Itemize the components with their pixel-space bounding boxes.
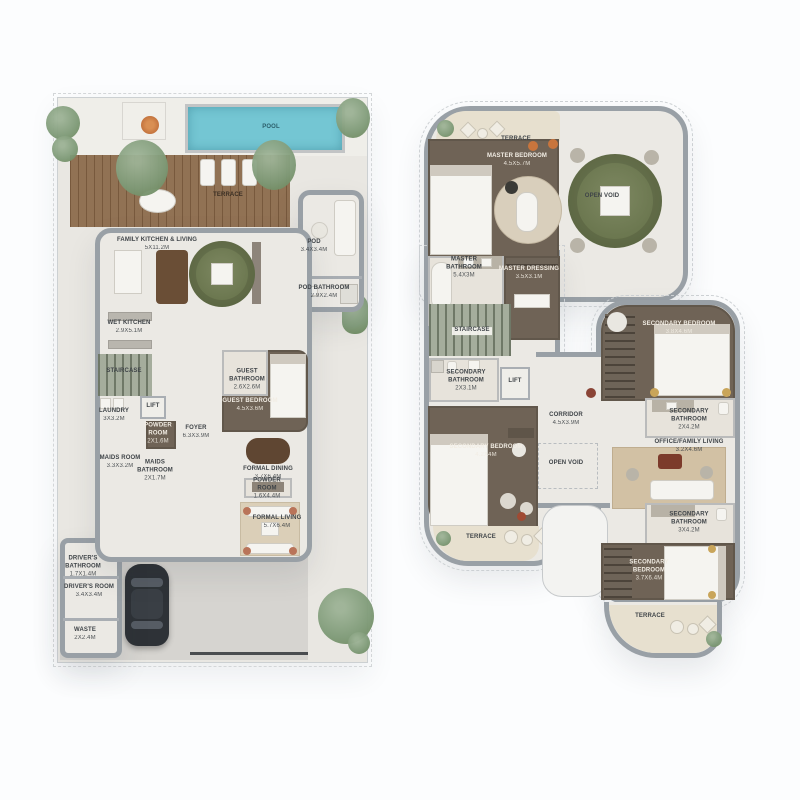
floor-plans-stage: POOLTERRACEFAMILY KITCHEN & LIVING5x11.2… [0,0,800,800]
room-label: MASTER BEDROOM4.5x5.7m [470,153,565,169]
seat [570,238,585,253]
side-table [700,466,713,479]
room-label: STAIRCASE [437,327,507,335]
room-label: FOYER6.3x3.9m [168,425,224,441]
bedside-lamp [708,545,716,553]
room-label: OFFICE/FAMILY LIVING3.2x4.6m [639,439,739,455]
tree [336,98,370,138]
room-label: TERRACE [451,534,511,542]
bed-headboard [718,546,726,600]
armchair [243,507,251,515]
room-label: DRIVER'S ROOM3.4x3.4m [49,584,129,600]
coffee-table [211,263,233,285]
room-label: LIFT [133,403,173,411]
void-shape [542,505,608,597]
wall [63,618,119,621]
car-rear-window [131,621,163,629]
room-label: SECONDARY BATHROOM2x3.1m [437,369,495,392]
side-chair [505,181,518,194]
room-label: POD BATHROOM2.9x2.4m [284,285,364,301]
dining-table [156,250,188,304]
plant [436,531,451,546]
void-table [600,186,630,216]
gate-line [190,652,308,655]
planter-pot [548,139,558,149]
room-label: GUEST BEDROOM4.5x3.6m [203,398,298,414]
seat [642,238,657,253]
fire-feature [141,116,159,134]
room-label: OPEN VOID [531,460,601,468]
room-label: CORRIDOR4.5x3.9m [536,412,596,428]
room-label: GUEST BATHROOM2.6x2.6m [225,368,269,391]
ottoman [658,454,682,469]
wardrobe [506,258,558,266]
room-label: DRIVER'S BATHROOM1.7x1.4m [58,555,108,578]
room-label: SECONDARY BEDROOM3.7x6.4m [622,559,676,582]
master-bed [430,165,492,255]
seat [570,148,585,163]
room-label: FAMILY KITCHEN & LIVING5x11.2m [97,237,217,253]
console-stool [586,388,596,398]
room-label: MASTER DRESSING3.5x3.1m [483,266,575,282]
room-label: SECONDARY BATHROOM2x4.2m [660,408,718,431]
accent-pot [517,512,526,521]
formal-dining-table [246,438,290,464]
dressing-island [514,294,550,308]
sofa [650,480,714,500]
bed-headboard [270,354,306,364]
room-label: SECONDARY BEDROOM3.8x4.6m [627,321,732,337]
room-label: WET KITCHEN2.9x5.1m [94,320,164,336]
bedside-lamp [722,388,731,397]
car-roof [131,589,163,619]
console [508,428,534,438]
room-label: MAIDS BATHROOM2x1.7m [131,459,179,482]
room-label: POOL [251,124,291,132]
tree [46,106,80,140]
room-label: OPEN VOID [567,193,637,201]
plant [437,120,454,137]
room-label: WASTE2x2.4m [60,627,110,643]
planter [687,623,699,635]
kitchen-island [114,250,142,294]
shrub [348,632,370,654]
palm-tree [116,140,168,196]
room-label: LIFT [495,378,535,386]
planter [670,620,684,634]
pod-chair [311,222,328,239]
toilet [718,402,729,415]
armchair [289,547,297,555]
seat [644,150,659,165]
bedside-lamp [650,388,659,397]
car-windshield [131,578,163,587]
sun-lounger [200,159,215,186]
room-label: TERRACE [198,192,258,200]
sofa [246,543,294,554]
room-label: POD3.4x3.4m [289,239,339,255]
room-label: TERRACE [486,136,546,144]
armchair [607,312,627,332]
room-label: SECONDARY BEDROOM4.2x4m [434,444,539,460]
room-label: STAIRCASE [89,368,159,376]
planter [521,534,533,546]
armchair [289,507,297,515]
palm-tree [252,140,296,190]
room-label: TERRACE [620,613,680,621]
armchair [243,547,251,555]
side-table [626,468,639,481]
room-label: FORMAL LIVING5.7x6.4m [237,515,317,531]
pouf [500,493,516,509]
bedside-lamp [708,591,716,599]
tree [52,136,78,162]
counter [108,340,152,349]
plant [706,631,722,647]
room-label: SECONDARY BATHROOM3x4.2m [660,511,718,534]
chaise [516,192,538,232]
room-label: POWDER ROOM1.6x4.4m [246,477,288,500]
sun-lounger [221,159,236,186]
